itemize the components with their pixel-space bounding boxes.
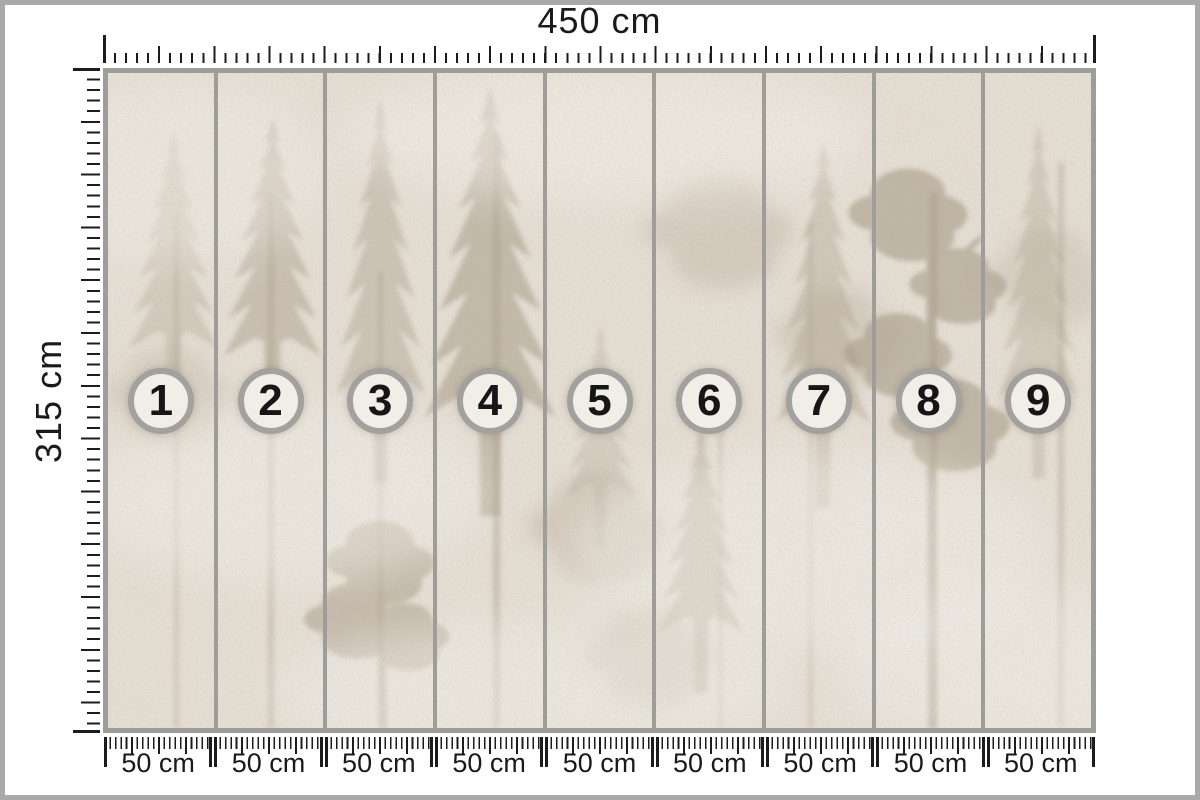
panel-number: 5 (587, 376, 611, 426)
panel-number-badge: 5 (567, 368, 633, 434)
panel-strip: 1 2 3 4 (108, 73, 1091, 728)
panel-number: 9 (1026, 376, 1050, 426)
panel-number-badge: 6 (676, 368, 742, 434)
mural-panel-1: 1 (108, 73, 218, 728)
panel-width-label: 50 cm (875, 748, 985, 779)
panel-number-badge: 2 (238, 368, 304, 434)
panel-number: 3 (368, 376, 392, 426)
panel-width-label: 50 cm (655, 748, 765, 779)
product-dimension-diagram: 450 cm 315 cm (0, 0, 1200, 800)
panel-width-label: 50 cm (544, 748, 654, 779)
top-ruler (103, 35, 1096, 63)
mural-panel-6: 6 (656, 73, 766, 728)
bottom-ruler-segment-9: 50 cm (986, 737, 1096, 795)
panel-number-badge: 4 (457, 368, 523, 434)
panel-number-badge: 7 (786, 368, 852, 434)
left-ruler (72, 68, 100, 733)
bottom-ruler-segment-8: 50 cm (875, 737, 985, 795)
panel-width-label: 50 cm (434, 748, 544, 779)
panel-number: 7 (807, 376, 831, 426)
panel-number: 1 (149, 376, 173, 426)
mural-panel-5: 5 (547, 73, 657, 728)
panel-width-label: 50 cm (986, 748, 1096, 779)
panel-number-badge: 9 (1005, 368, 1071, 434)
mural-panel-7: 7 (766, 73, 876, 728)
wallpaper-mural: 1 2 3 4 (103, 68, 1096, 733)
panel-number: 4 (478, 376, 502, 426)
mural-print-area: 1 2 3 4 (108, 73, 1091, 728)
bottom-ruler-segment-5: 50 cm (544, 737, 654, 795)
panel-width-label: 50 cm (765, 748, 875, 779)
mural-panel-4: 4 (437, 73, 547, 728)
panel-number: 6 (697, 376, 721, 426)
bottom-ruler-segment-7: 50 cm (765, 737, 875, 795)
bottom-ruler-segment-3: 50 cm (324, 737, 434, 795)
panel-number-badge: 3 (347, 368, 413, 434)
mural-panel-8: 8 (876, 73, 986, 728)
panel-number-badge: 1 (128, 368, 194, 434)
bottom-ruler-segment-1: 50 cm (103, 737, 213, 795)
mural-panel-9: 9 (985, 73, 1091, 728)
panel-number-badge: 8 (896, 368, 962, 434)
panel-number: 2 (258, 376, 282, 426)
bottom-ruler-segment-6: 50 cm (655, 737, 765, 795)
mural-panel-3: 3 (327, 73, 437, 728)
bottom-ruler-segment-4: 50 cm (434, 737, 544, 795)
mural-panel-2: 2 (218, 73, 328, 728)
height-dimension-label: 315 cm (28, 68, 70, 733)
bottom-ruler-segment-2: 50 cm (213, 737, 323, 795)
bottom-ruler: 50 cm 50 cm 50 cm 50 cm 50 cm 50 cm 50 c… (103, 737, 1096, 795)
panel-width-label: 50 cm (324, 748, 434, 779)
panel-width-label: 50 cm (213, 748, 323, 779)
panel-number: 8 (916, 376, 940, 426)
panel-width-label: 50 cm (103, 748, 213, 779)
